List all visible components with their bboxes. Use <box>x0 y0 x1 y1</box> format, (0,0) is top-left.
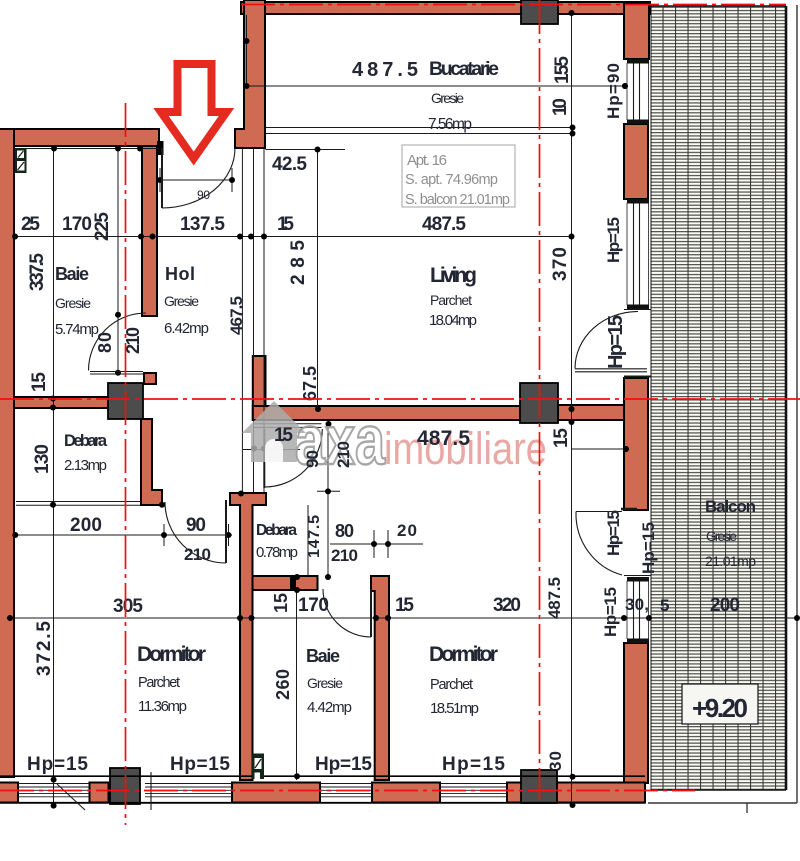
svg-text:Balcon: Balcon <box>705 497 756 516</box>
svg-text:Gresie: Gresie <box>164 293 199 309</box>
svg-text:170: 170 <box>62 214 92 235</box>
svg-text:7.56mp: 7.56mp <box>428 116 472 133</box>
svg-text:15: 15 <box>29 372 50 392</box>
svg-text:Hp=90: Hp=90 <box>604 63 623 119</box>
svg-text:18.04mp: 18.04mp <box>429 312 477 329</box>
svg-text:Hol: Hol <box>165 264 195 284</box>
svg-text:Hp=15: Hp=15 <box>315 754 372 775</box>
svg-text:Hp=15: Hp=15 <box>639 522 658 574</box>
svg-text:15: 15 <box>395 595 414 616</box>
svg-text:18.51mp: 18.51mp <box>430 700 479 717</box>
svg-text:137.5: 137.5 <box>180 214 225 235</box>
svg-text:337.5: 337.5 <box>27 253 48 291</box>
svg-text:130: 130 <box>32 444 53 474</box>
svg-text:15: 15 <box>551 428 572 448</box>
svg-text:Gresie: Gresie <box>307 675 343 691</box>
svg-text:90: 90 <box>303 450 322 468</box>
svg-text:Gresie: Gresie <box>431 90 464 106</box>
svg-text:90: 90 <box>186 515 206 536</box>
svg-text:372.5: 372.5 <box>34 621 55 676</box>
svg-text:80: 80 <box>95 332 115 353</box>
svg-text:Hp=15: Hp=15 <box>605 315 627 369</box>
svg-text:Living: Living <box>430 264 477 287</box>
svg-text:5: 5 <box>660 596 669 615</box>
svg-text:147.5: 147.5 <box>306 515 323 558</box>
svg-text:42.5: 42.5 <box>272 154 307 175</box>
svg-text:Dormitor: Dormitor <box>137 643 206 666</box>
svg-text:320: 320 <box>493 595 521 616</box>
svg-text:Hp=15: Hp=15 <box>604 510 623 556</box>
svg-text:487.5: 487.5 <box>417 427 470 450</box>
svg-text:467.5: 467.5 <box>227 296 246 335</box>
svg-text:10: 10 <box>550 98 571 116</box>
svg-text:0.78mp: 0.78mp <box>256 544 298 561</box>
svg-text:4.42mp: 4.42mp <box>307 699 352 716</box>
svg-text:Parchet: Parchet <box>430 292 472 308</box>
svg-text:15: 15 <box>274 425 293 446</box>
svg-text:370: 370 <box>550 247 571 281</box>
svg-text:260: 260 <box>273 669 293 700</box>
svg-text:Hp=15: Hp=15 <box>27 754 88 775</box>
svg-text:67.5: 67.5 <box>300 366 320 401</box>
svg-text:Parchet: Parchet <box>138 675 180 691</box>
svg-text:285: 285 <box>288 240 309 285</box>
svg-text:90: 90 <box>197 188 210 202</box>
svg-text:15: 15 <box>277 214 294 235</box>
svg-text:200: 200 <box>710 595 740 616</box>
svg-text:Hp=15: Hp=15 <box>170 754 230 775</box>
svg-text:Debara: Debara <box>256 522 297 539</box>
svg-text:11.36mp: 11.36mp <box>138 698 187 715</box>
svg-text:Hp=15: Hp=15 <box>604 217 623 263</box>
svg-text:155: 155 <box>552 56 573 84</box>
svg-text:225: 225 <box>92 212 113 241</box>
svg-text:Gresie: Gresie <box>55 295 91 311</box>
svg-text:305: 305 <box>113 596 143 617</box>
svg-text:Bucatarie: Bucatarie <box>429 58 499 80</box>
svg-text:S. apt. 74.96mp: S. apt. 74.96mp <box>405 172 498 188</box>
svg-text:Baie: Baie <box>306 646 340 666</box>
svg-text:200: 200 <box>70 515 102 536</box>
svg-text:30: 30 <box>546 751 565 771</box>
svg-text:80: 80 <box>335 521 354 541</box>
svg-text:25: 25 <box>21 214 40 235</box>
svg-text:487.5: 487.5 <box>422 214 466 235</box>
svg-text:20: 20 <box>397 521 417 540</box>
svg-text:487.5: 487.5 <box>352 59 418 81</box>
svg-text:210: 210 <box>184 545 211 564</box>
svg-text:+9.20: +9.20 <box>692 693 748 723</box>
svg-text:210: 210 <box>331 546 358 565</box>
svg-text:170: 170 <box>298 595 329 616</box>
svg-text:5.74mp: 5.74mp <box>55 321 99 338</box>
svg-text:Debara: Debara <box>64 432 108 450</box>
svg-text:6.42mp: 6.42mp <box>164 320 209 337</box>
svg-text:Dormitor: Dormitor <box>429 643 498 666</box>
svg-text:210: 210 <box>334 441 353 468</box>
svg-text:Hp=15: Hp=15 <box>601 587 620 637</box>
svg-text:30,: 30, <box>625 595 649 614</box>
svg-text:487.5: 487.5 <box>545 577 564 619</box>
svg-text:Hp=15: Hp=15 <box>442 754 505 775</box>
svg-text:2.13mp: 2.13mp <box>64 457 107 474</box>
svg-text:Apt. 16: Apt. 16 <box>407 152 447 169</box>
svg-text:Parchet: Parchet <box>430 677 473 693</box>
svg-text:15: 15 <box>271 593 291 613</box>
svg-text:Baie: Baie <box>55 264 89 284</box>
svg-text:Gresie: Gresie <box>706 529 737 544</box>
svg-text:S. balcon 21.01mp: S. balcon 21.01mp <box>405 192 510 208</box>
svg-text:21.01mp: 21.01mp <box>705 553 756 569</box>
